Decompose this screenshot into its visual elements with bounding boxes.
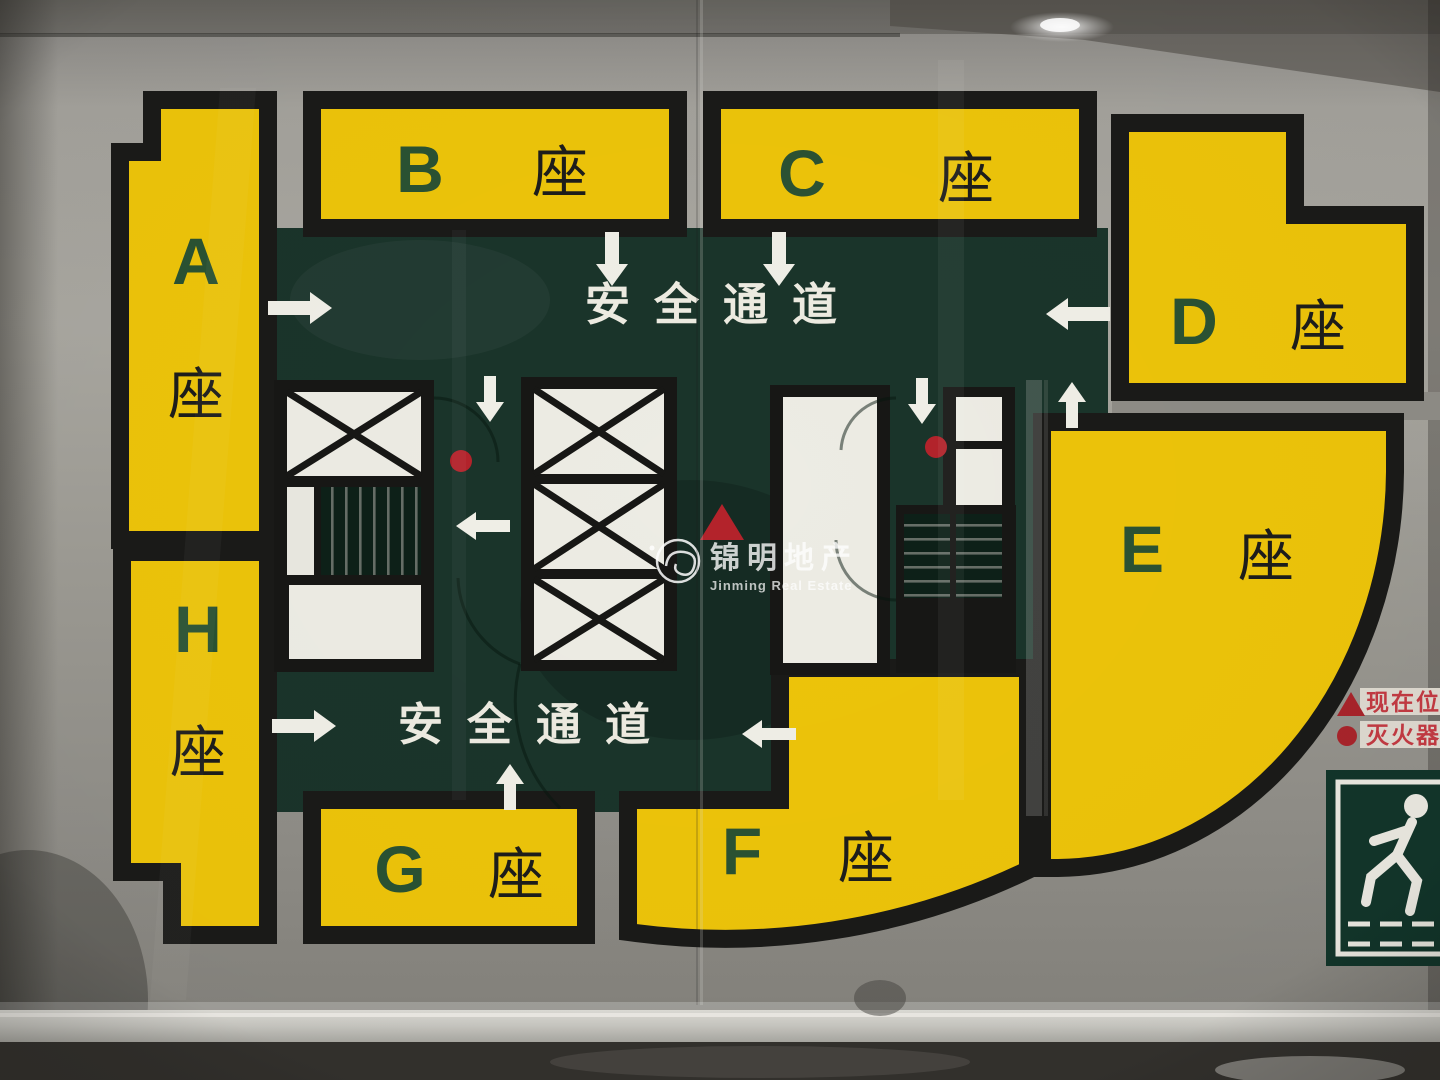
evacuation-sign-photo: A 座 H 座 B 座 C 座 D 座 E 座 F 座 G 座 — [0, 0, 1440, 1080]
evacuation-map-svg: A 座 H 座 B 座 C 座 D 座 E 座 F 座 G 座 — [0, 0, 1440, 1080]
vignette-overlay — [0, 0, 1440, 1080]
